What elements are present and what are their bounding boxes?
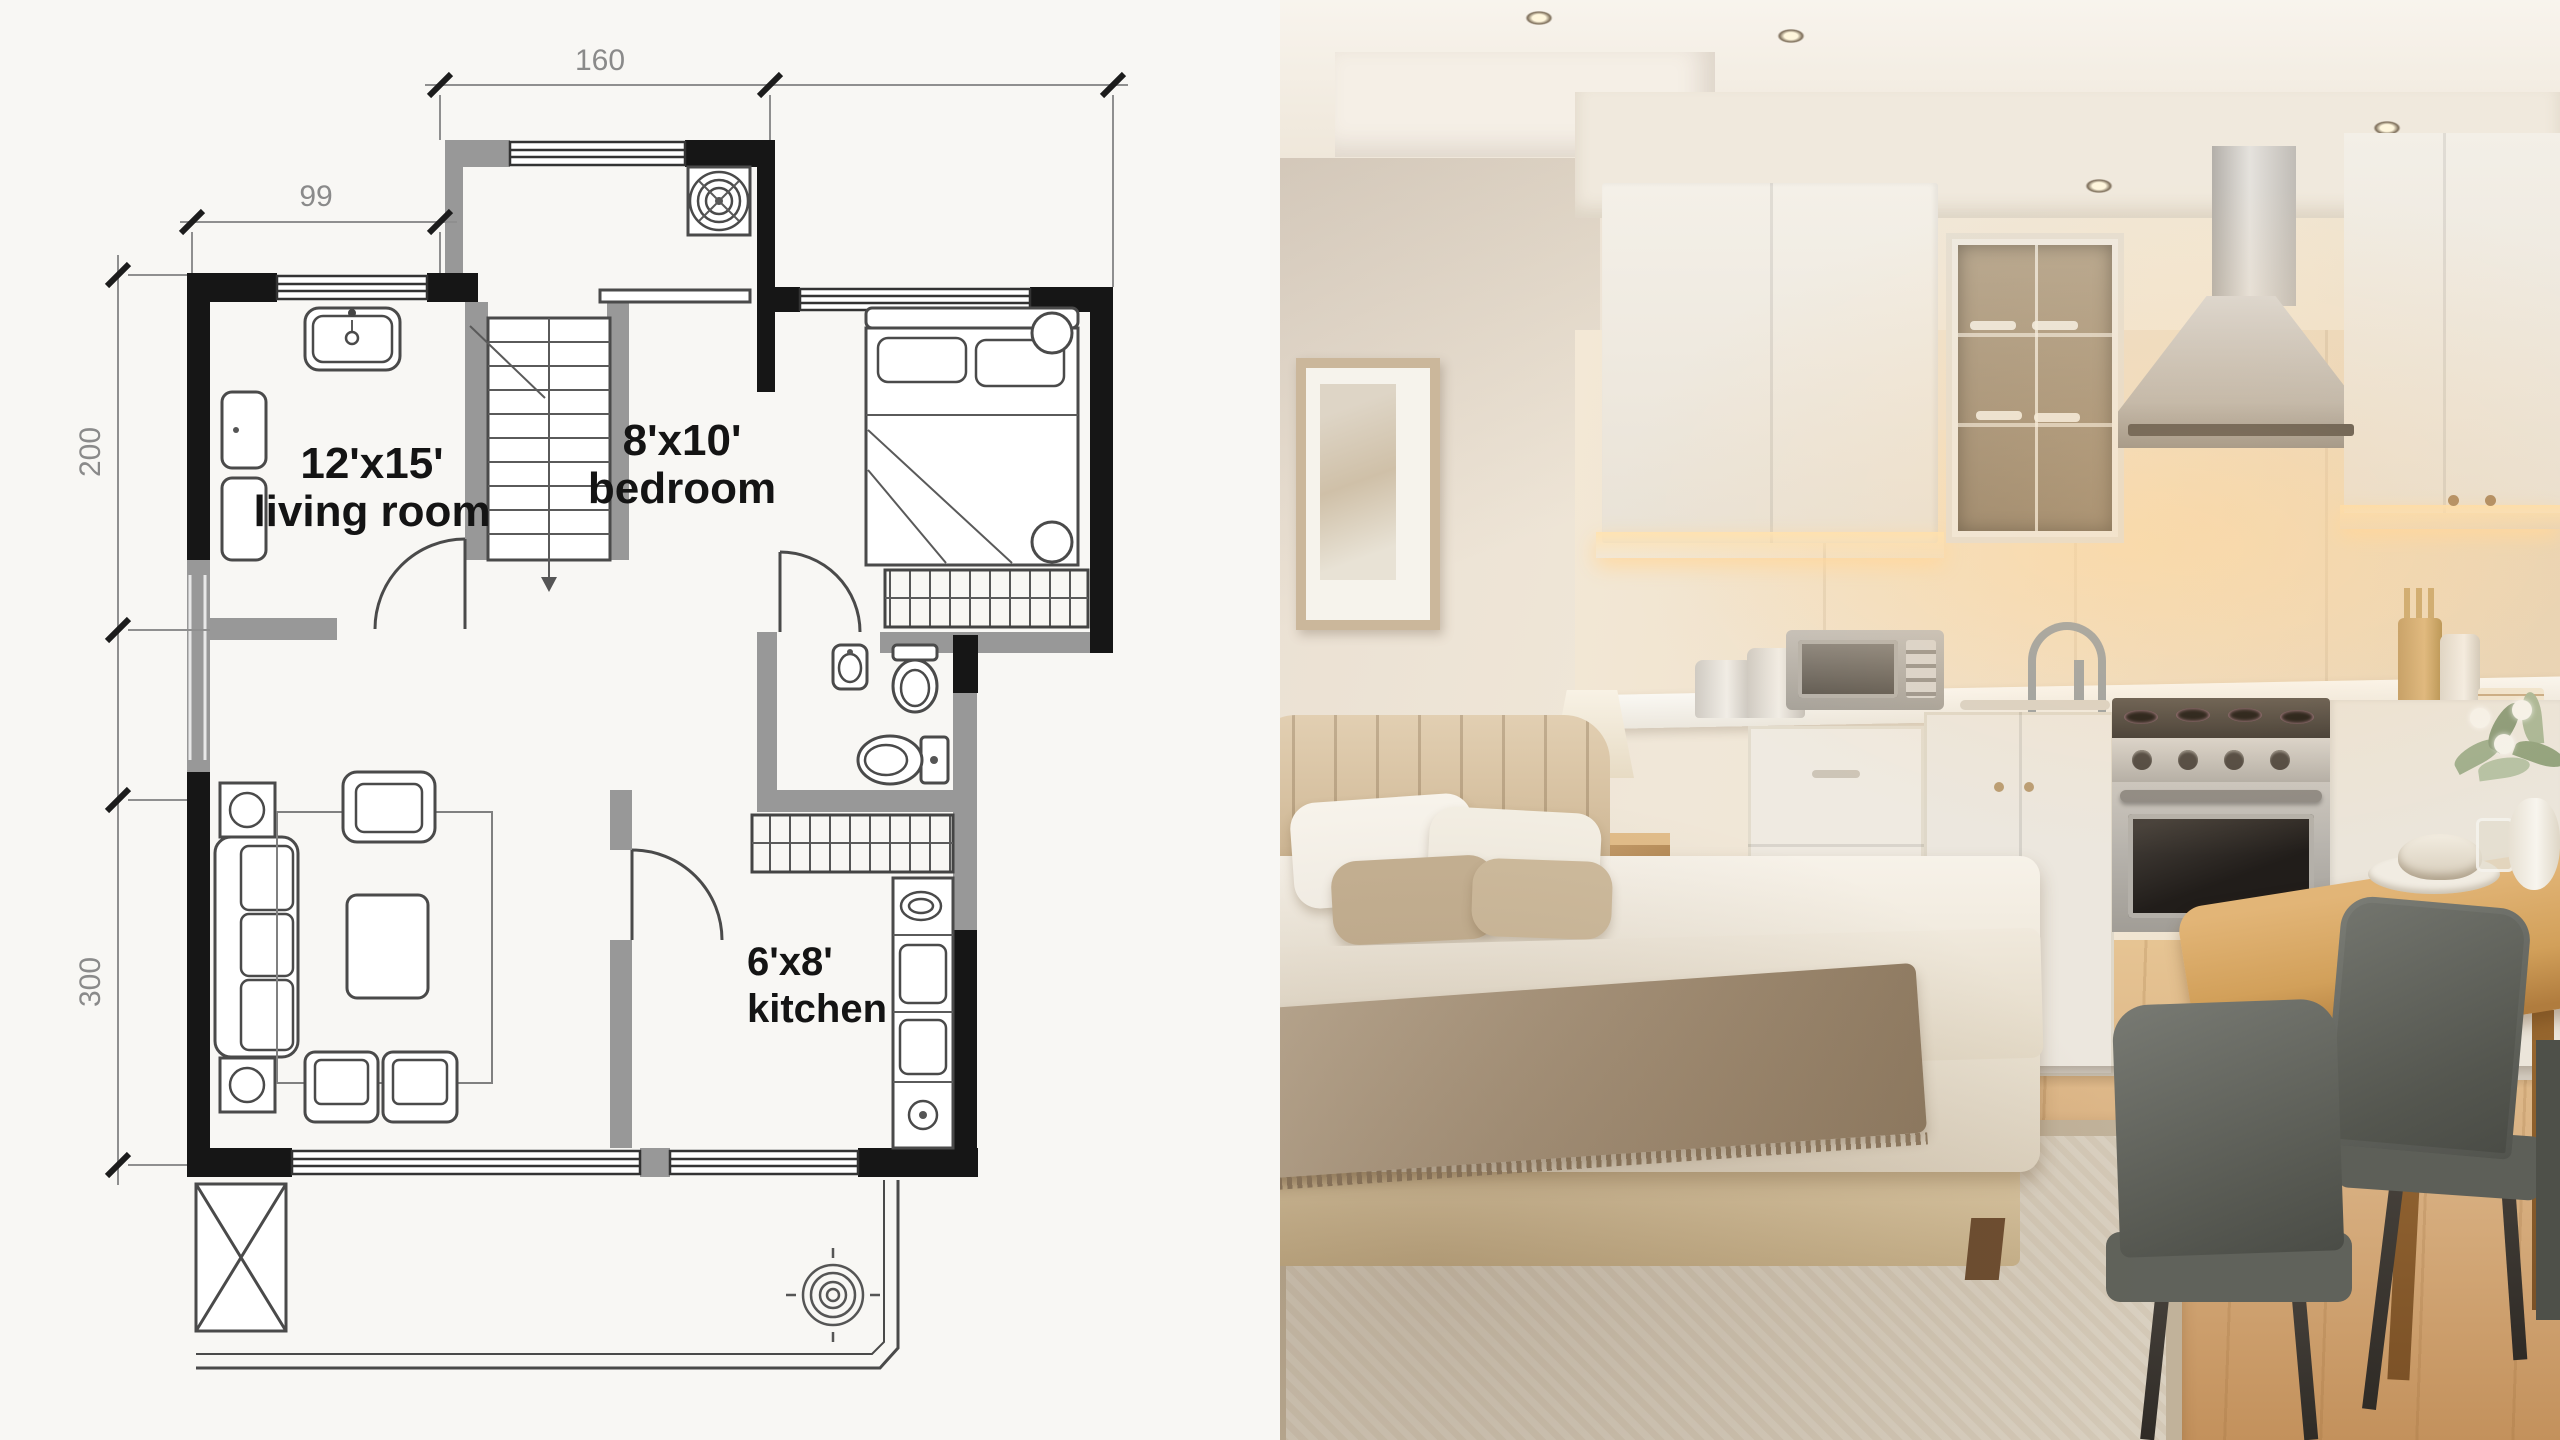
- floor-plan-panel: 160 99 200 300 12'x15' living room 8'x10…: [0, 0, 1280, 1440]
- dining-chair: [2321, 894, 2532, 1160]
- dim-entry-width: 99: [299, 180, 332, 213]
- under-cabinet-light-strip: [1596, 532, 1944, 558]
- cabinet-knob: [2448, 495, 2459, 506]
- cabinet-handle: [2024, 782, 2034, 792]
- bed: [866, 308, 1078, 565]
- dish-stack: [2032, 321, 2078, 330]
- kitchen-counter: [893, 878, 953, 1148]
- wall-art-print: [1320, 384, 1396, 580]
- recessed-light-icon: [1772, 26, 1810, 46]
- accent-pillow: [1471, 858, 1614, 941]
- dim-lower-height: 300: [74, 957, 107, 1007]
- recessed-light-icon: [1520, 8, 1558, 28]
- doors: [375, 539, 860, 940]
- living-room-name-label: living room: [253, 487, 490, 536]
- recessed-light-icon: [2080, 176, 2118, 196]
- toaster-oven: [1786, 630, 1944, 710]
- burner-grate: [2176, 708, 2210, 722]
- flower-bloom: [2470, 708, 2490, 728]
- balcony: [196, 1180, 898, 1368]
- split-view: 160 99 200 300 12'x15' living room 8'x10…: [0, 0, 2560, 1440]
- range-knob: [2132, 750, 2152, 770]
- floor-plan-drawing: 160 99 200 300 12'x15' living room 8'x10…: [0, 0, 1280, 1440]
- stairs: [470, 318, 610, 592]
- dish-stack: [1970, 321, 2016, 330]
- burner-grate: [2124, 710, 2158, 724]
- entry-shelf: [600, 290, 750, 302]
- bedroom-name-label: bedroom: [588, 464, 776, 513]
- dish-stack: [2034, 413, 2080, 422]
- oven-handle: [2120, 790, 2322, 802]
- living-room-size-label: 12'x15': [300, 439, 443, 488]
- cabinet-handle: [1994, 782, 2004, 792]
- bedroom-size-label: 8'x10': [623, 416, 742, 465]
- cabinet-glass: [1958, 245, 2112, 531]
- flower-bouquet: [2448, 700, 2560, 812]
- range-hood-filter: [2128, 424, 2354, 436]
- range-hood-chimney: [2212, 146, 2296, 306]
- wall-art-frame: [1296, 358, 1440, 630]
- bed-foot: [1965, 1218, 2006, 1280]
- burner-grate: [2280, 710, 2314, 724]
- burner-grate: [2228, 708, 2262, 722]
- drawer-handle: [1812, 770, 1860, 778]
- cabinet-shelf: [1958, 423, 2112, 427]
- dim-upper-height: 200: [74, 427, 107, 477]
- upper-cabinet-right: [2344, 133, 2560, 513]
- dish-stack: [1976, 411, 2022, 420]
- lounge-furniture: [215, 772, 492, 1122]
- canister: [1695, 660, 1753, 718]
- bowl: [2398, 834, 2482, 880]
- interior-photo-panel: [1280, 0, 2560, 1440]
- range-knob: [2224, 750, 2244, 770]
- toaster-oven-controls: [1906, 640, 1936, 698]
- bathroom-fixtures: [833, 645, 948, 784]
- living-room-sink: [305, 308, 400, 370]
- under-cabinet-light-strip: [2340, 505, 2560, 529]
- toaster-oven-door: [1798, 640, 1898, 698]
- dim-top-width: 160: [575, 44, 625, 77]
- kitchen-name-label: kitchen: [747, 987, 887, 1031]
- dining-chair-partial: [2536, 1040, 2560, 1320]
- compass-symbol: [786, 1248, 880, 1342]
- dining-chair: [2112, 998, 2345, 1258]
- ceiling-fan-symbol: [688, 167, 750, 235]
- cabinet-shelf: [1958, 333, 2112, 337]
- range-knob: [2178, 750, 2198, 770]
- flower-bloom: [2494, 734, 2514, 754]
- cabinet-knob: [2485, 495, 2496, 506]
- flower-bloom: [2512, 700, 2532, 720]
- range-knob: [2270, 750, 2290, 770]
- kitchen-size-label: 6'x8': [747, 940, 833, 984]
- kitchen-sink: [1960, 700, 2110, 710]
- upper-cabinet-left: [1602, 183, 1938, 543]
- glass-front-cabinet: [1946, 233, 2124, 543]
